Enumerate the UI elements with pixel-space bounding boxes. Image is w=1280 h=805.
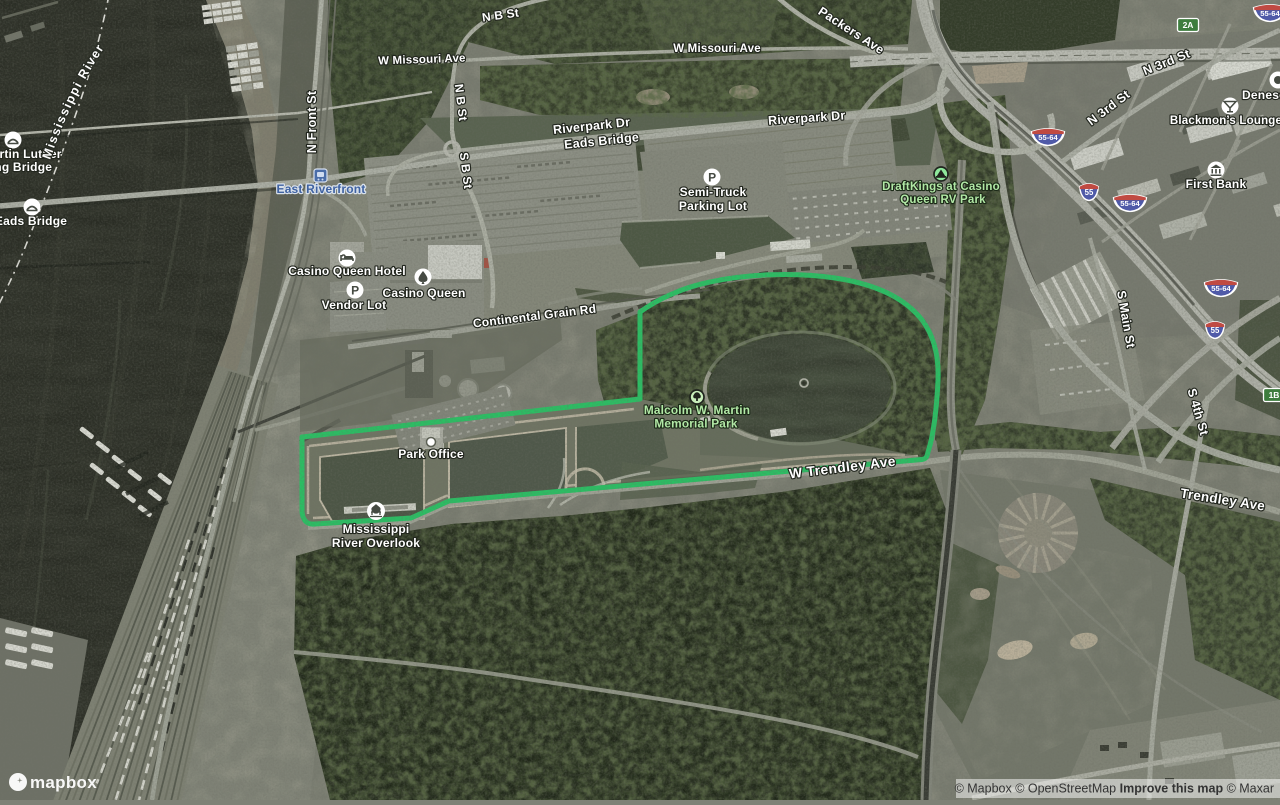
svg-text:© Mapbox © OpenStreetMap Impro: © Mapbox © OpenStreetMap Improve this ma…	[955, 782, 1274, 796]
svg-text:55-64: 55-64	[1120, 199, 1140, 208]
svg-text:Denese: Denese	[1242, 88, 1280, 102]
svg-text:mapbox: mapbox	[30, 773, 97, 792]
svg-text:55: 55	[1085, 188, 1094, 197]
svg-text:Parking Lot: Parking Lot	[679, 199, 747, 213]
svg-text:Park Office: Park Office	[398, 447, 464, 461]
svg-text:P: P	[708, 171, 716, 185]
svg-text:2A: 2A	[1183, 20, 1194, 30]
svg-text:55-64: 55-64	[1038, 133, 1058, 142]
svg-text:Memorial Park: Memorial Park	[654, 417, 737, 431]
svg-text:Casino Queen Hotel: Casino Queen Hotel	[288, 264, 406, 278]
svg-text:Casino Queen: Casino Queen	[382, 286, 465, 300]
svg-text:Vendor Lot: Vendor Lot	[322, 298, 387, 312]
svg-text:Queen RV Park: Queen RV Park	[900, 194, 986, 206]
svg-text:East Riverfront: East Riverfront	[276, 182, 365, 196]
svg-text:P: P	[351, 284, 359, 298]
svg-text:First Bank: First Bank	[1186, 177, 1247, 191]
svg-text:Semi-Truck: Semi-Truck	[680, 185, 747, 199]
svg-text:N Front St: N Front St	[305, 90, 319, 153]
svg-text:King Bridge: King Bridge	[0, 160, 52, 174]
svg-text:1B: 1B	[1269, 390, 1280, 400]
svg-text:Mississippi: Mississippi	[343, 522, 410, 536]
svg-text:River Overlook: River Overlook	[332, 536, 420, 550]
svg-text:DraftKings at Casino: DraftKings at Casino	[882, 181, 1000, 193]
svg-text:55-64: 55-64	[1211, 284, 1231, 293]
svg-text:Malcolm W. Martin: Malcolm W. Martin	[644, 403, 750, 417]
svg-text:55: 55	[1211, 326, 1220, 335]
svg-text:Blackmon’s Lounge: Blackmon’s Lounge	[1170, 115, 1280, 127]
svg-text:Eads Bridge: Eads Bridge	[0, 214, 67, 228]
svg-text:W Missouri Ave: W Missouri Ave	[673, 43, 761, 55]
svg-text:55-64: 55-64	[1260, 9, 1280, 18]
